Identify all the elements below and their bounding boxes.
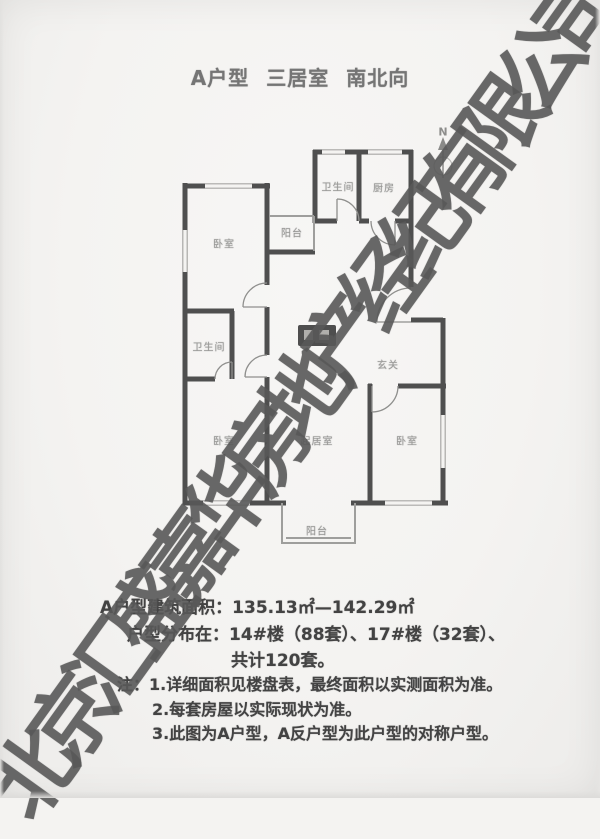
room-label-balcony-south: 阳台 bbox=[306, 523, 328, 538]
notes-prefix: 注： bbox=[117, 675, 149, 694]
note-text-1: 1.详细面积见楼盘表，最终面积以实测面积为准。 bbox=[149, 675, 502, 694]
room-label-bathroom-north: 卫生间 bbox=[322, 179, 355, 194]
room-label-kitchen: 厨房 bbox=[373, 180, 395, 195]
dining-label-box bbox=[298, 325, 336, 346]
photo-page: A户型 三居室 南北向 N 卧室 阳台 卫生间 厨房 卫生间 卧室 起居室 bbox=[0, 0, 600, 798]
note-line-1: 注：1.详细面积见楼盘表，最终面积以实测面积为准。 bbox=[117, 671, 502, 695]
room-label-living-room: 起居室 bbox=[301, 433, 334, 448]
room-label-bedroom-sw: 卧室 bbox=[213, 433, 235, 448]
distribution-total: 共计120套。 bbox=[231, 646, 335, 671]
north-compass-icon bbox=[434, 137, 452, 178]
room-label-bedroom-se: 卧室 bbox=[396, 433, 418, 448]
area-line: A户型建筑面积：135.13㎡—142.29㎡ bbox=[100, 593, 414, 618]
room-label-bathroom-west: 卫生间 bbox=[193, 339, 226, 354]
note-line-2: 2.每套房屋以实际现状为准。 bbox=[152, 696, 361, 720]
photo-edge-bottom bbox=[0, 791, 600, 798]
room-label-foyer: 玄关 bbox=[377, 357, 399, 372]
photo-edge-right bbox=[595, 0, 600, 798]
photo-edge-left bbox=[0, 0, 4, 798]
compass-north-label: N bbox=[438, 126, 447, 139]
note-line-3: 3.此图为A户型，A反户型为此户型的对称户型。 bbox=[152, 720, 498, 744]
room-label-bedroom-nw: 卧室 bbox=[213, 236, 235, 251]
balcony-walls bbox=[269, 216, 356, 544]
room-label-balcony-north: 阳台 bbox=[281, 225, 303, 240]
distribution-line: 户型分布在：14#楼（88套）、17#楼（32套）、 bbox=[127, 620, 505, 645]
